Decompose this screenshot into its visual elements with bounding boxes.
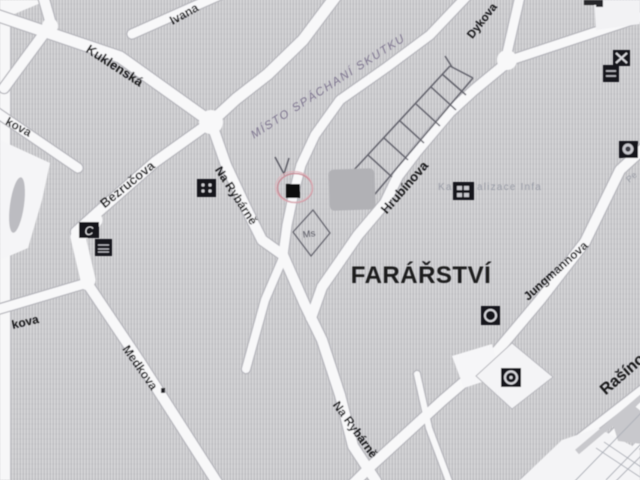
svg-text:Ms: Ms: [302, 228, 316, 241]
svg-text:alizace Infa: alizace Infa: [477, 182, 542, 193]
svg-text:kova: kova: [10, 312, 40, 332]
svg-text:C: C: [85, 224, 94, 238]
svg-text:Ka: Ka: [438, 182, 453, 193]
svg-text:Jungmannova: Jungmannova: [521, 238, 591, 303]
svg-text:Dykova: Dykova: [465, 1, 500, 41]
svg-text:Ivana: Ivana: [167, 0, 201, 27]
svg-text:Bezručova: Bezručova: [97, 157, 158, 211]
svg-text:FARÁŘSTVÍ: FARÁŘSTVÍ: [351, 261, 492, 289]
svg-text:Medkova: Medkova: [120, 343, 161, 393]
